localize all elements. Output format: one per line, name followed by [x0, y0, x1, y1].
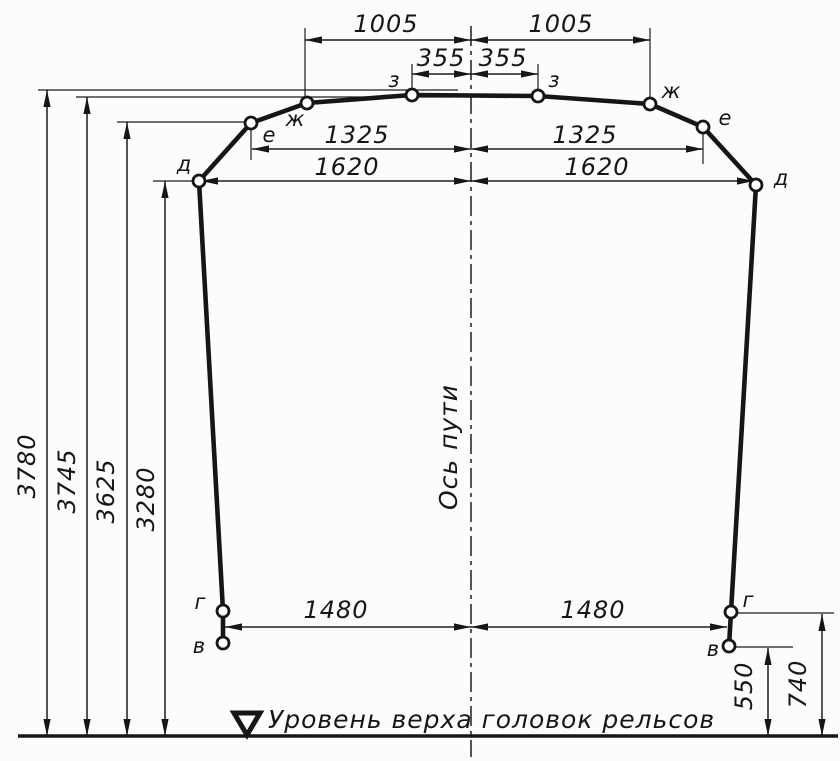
track-axis-label: Ось пути [434, 384, 463, 510]
point-v-right [723, 640, 735, 652]
point-d-left [193, 175, 205, 187]
level-marker-triangle [234, 713, 260, 735]
dim-1005-left-label: 1005 [353, 10, 418, 38]
point-e-left [245, 117, 257, 129]
dim-1325-right-label: 1325 [552, 121, 617, 149]
dimension-labels: 1005 1005 355 355 1325 1325 1620 1620 14… [13, 10, 812, 710]
gauge-outline [199, 95, 756, 646]
label-g-right: г [742, 588, 754, 612]
point-g-left [217, 605, 229, 617]
diagram-canvas: 1005 1005 355 355 1325 1325 1620 1620 14… [0, 0, 840, 761]
dim-1620-left-label: 1620 [314, 153, 379, 181]
dim-1480-left-label: 1480 [303, 596, 368, 624]
point-z-left [406, 89, 418, 101]
dim-3280-label: 3280 [132, 466, 160, 531]
rail-level-label: Уровень верха головок рельсов [268, 705, 715, 734]
dim-1620-right-label: 1620 [564, 153, 629, 181]
label-e-left: е [263, 123, 276, 147]
clearance-gauge-drawing: 1005 1005 355 355 1325 1325 1620 1620 14… [0, 0, 840, 761]
dim-550-label: 550 [730, 662, 758, 711]
label-v-right: в [707, 637, 719, 661]
dim-740-label: 740 [784, 660, 812, 709]
dim-3625-label: 3625 [92, 458, 120, 523]
dim-3780-label: 3780 [13, 433, 41, 498]
dim-1480-right-label: 1480 [560, 596, 625, 624]
label-d-right: д [773, 166, 789, 190]
point-v-left [217, 637, 229, 649]
label-zh-right: ж [661, 79, 681, 103]
point-d-right [750, 179, 762, 191]
label-e-right: е [719, 106, 732, 130]
point-labels: з з ж ж е е д д г г в в [176, 68, 789, 661]
dim-1005-right-label: 1005 [528, 10, 593, 38]
label-z-left: з [388, 68, 399, 92]
label-zh-left: ж [285, 107, 305, 131]
point-e-right [697, 121, 709, 133]
point-g-right [725, 606, 737, 618]
dim-1325-left-label: 1325 [324, 121, 389, 149]
point-markers [193, 89, 762, 652]
point-zh-right [644, 98, 656, 110]
label-v-left: в [193, 634, 205, 658]
point-z-right [532, 90, 544, 102]
dim-3745-label: 3745 [53, 448, 81, 513]
extension-lines [38, 28, 834, 647]
label-d-left: д [176, 152, 192, 176]
label-g-left: г [194, 590, 206, 614]
dim-355-left-label: 355 [417, 44, 466, 72]
dim-355-right-label: 355 [479, 44, 528, 72]
label-z-right: з [548, 68, 559, 92]
